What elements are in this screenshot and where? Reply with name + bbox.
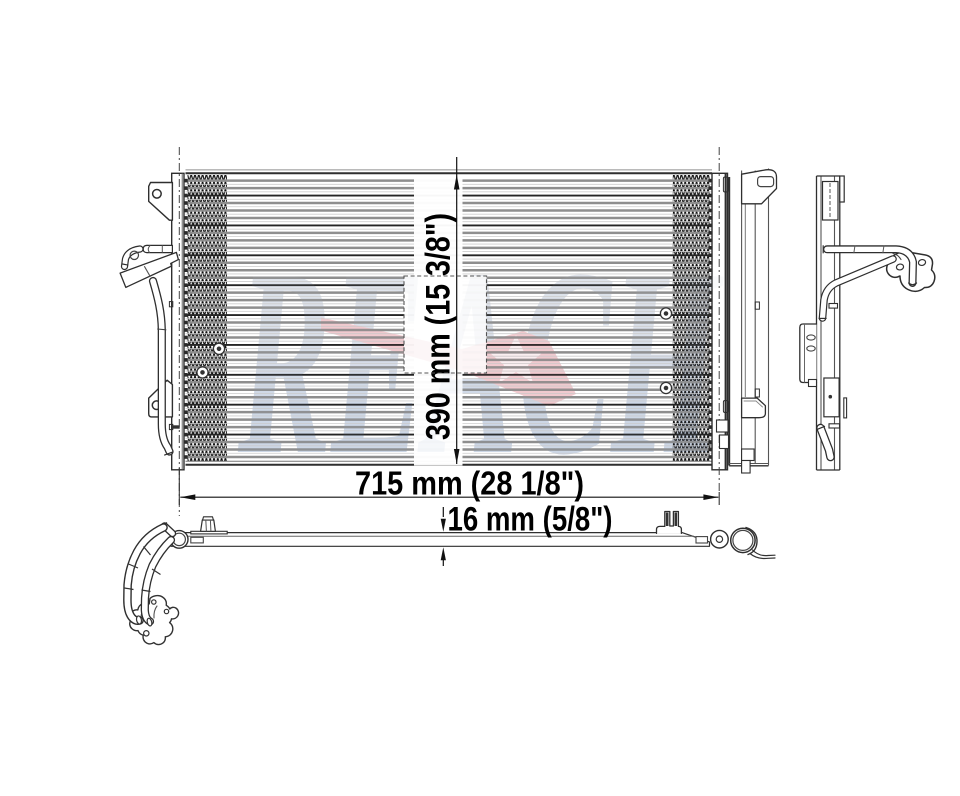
svg-text:390 mm (15 3/8"): 390 mm (15 3/8") xyxy=(420,213,458,440)
svg-text:16 mm (5/8"): 16 mm (5/8") xyxy=(448,501,613,539)
svg-text:715 mm (28 1/8"): 715 mm (28 1/8") xyxy=(355,466,584,503)
